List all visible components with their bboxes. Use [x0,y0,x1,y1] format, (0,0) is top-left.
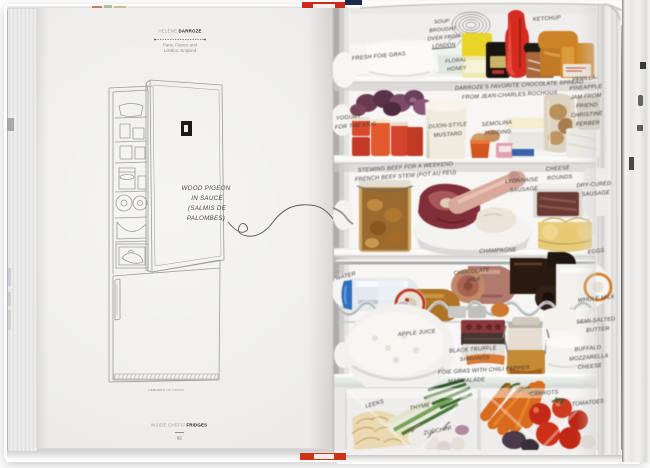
svg-text:INSIDE CHEFS’ FRIDGES: INSIDE CHEFS’ FRIDGES [151,423,208,428]
svg-text:IN SAUCE: IN SAUCE [191,195,223,202]
svg-text:82: 82 [177,436,182,441]
svg-text:HÉLÈNE DARROZE: HÉLÈNE DARROZE [158,29,201,34]
svg-text:LIEBHERR NO FROST: LIEBHERR NO FROST [148,388,184,392]
svg-text:(SALMIS DE: (SALMIS DE [188,205,227,212]
svg-text:Paris, France and: Paris, France and [163,43,198,48]
svg-text:PALOMBES): PALOMBES) [187,215,225,222]
svg-text:WOOD PIGEON: WOOD PIGEON [181,185,230,192]
svg-text:London, England: London, England [164,48,197,53]
